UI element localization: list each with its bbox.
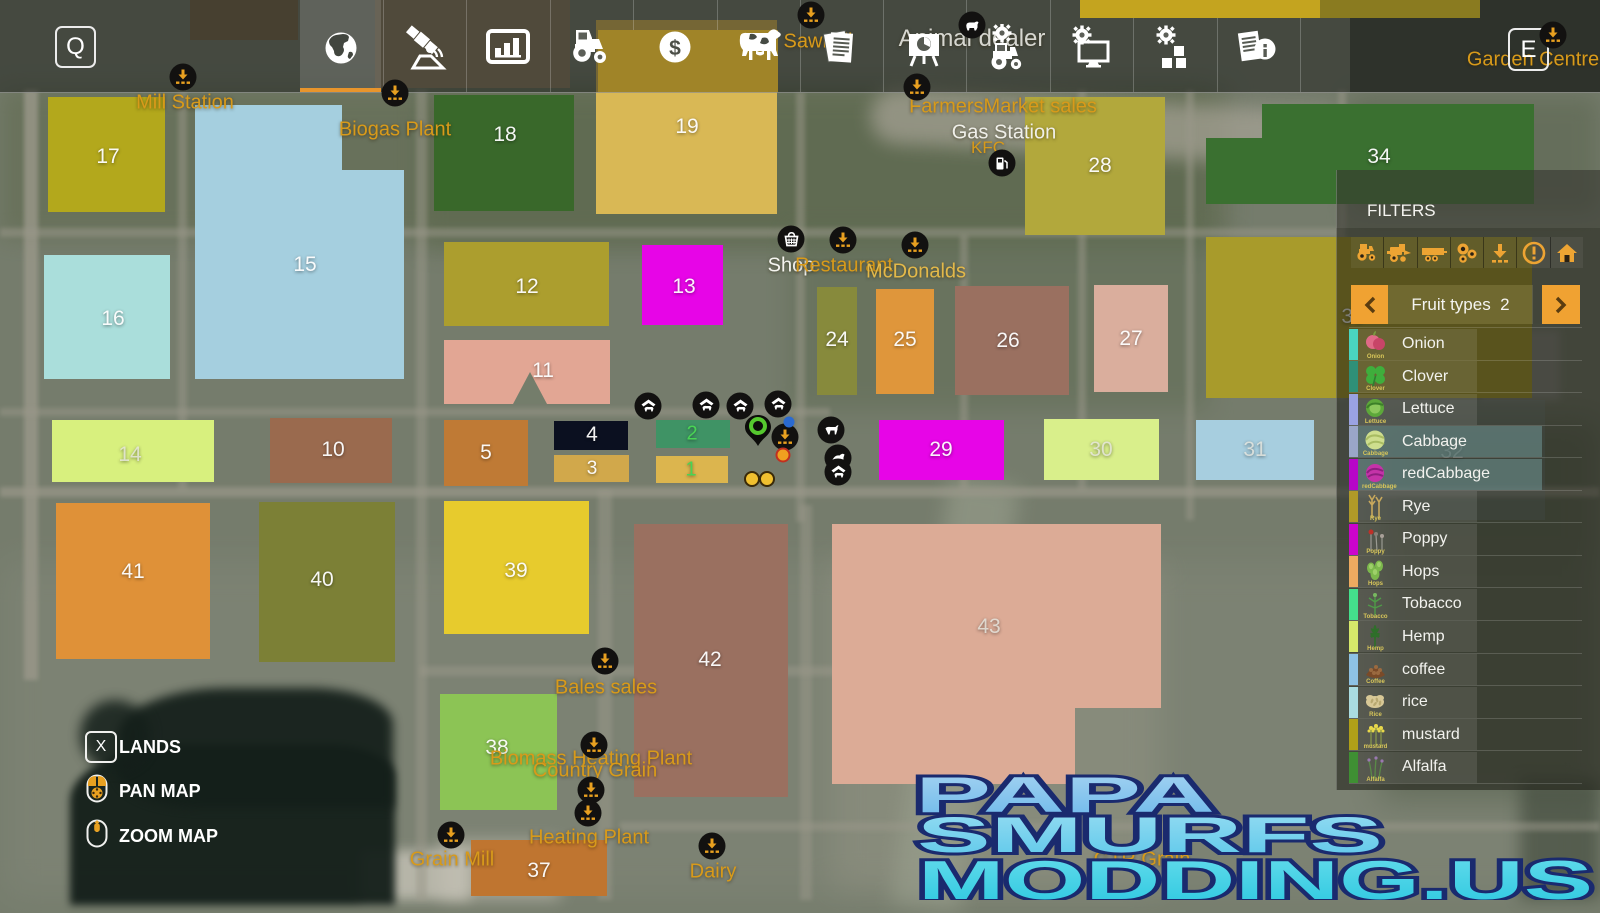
svg-text:MODDING.US: MODDING.US (918, 849, 1593, 900)
